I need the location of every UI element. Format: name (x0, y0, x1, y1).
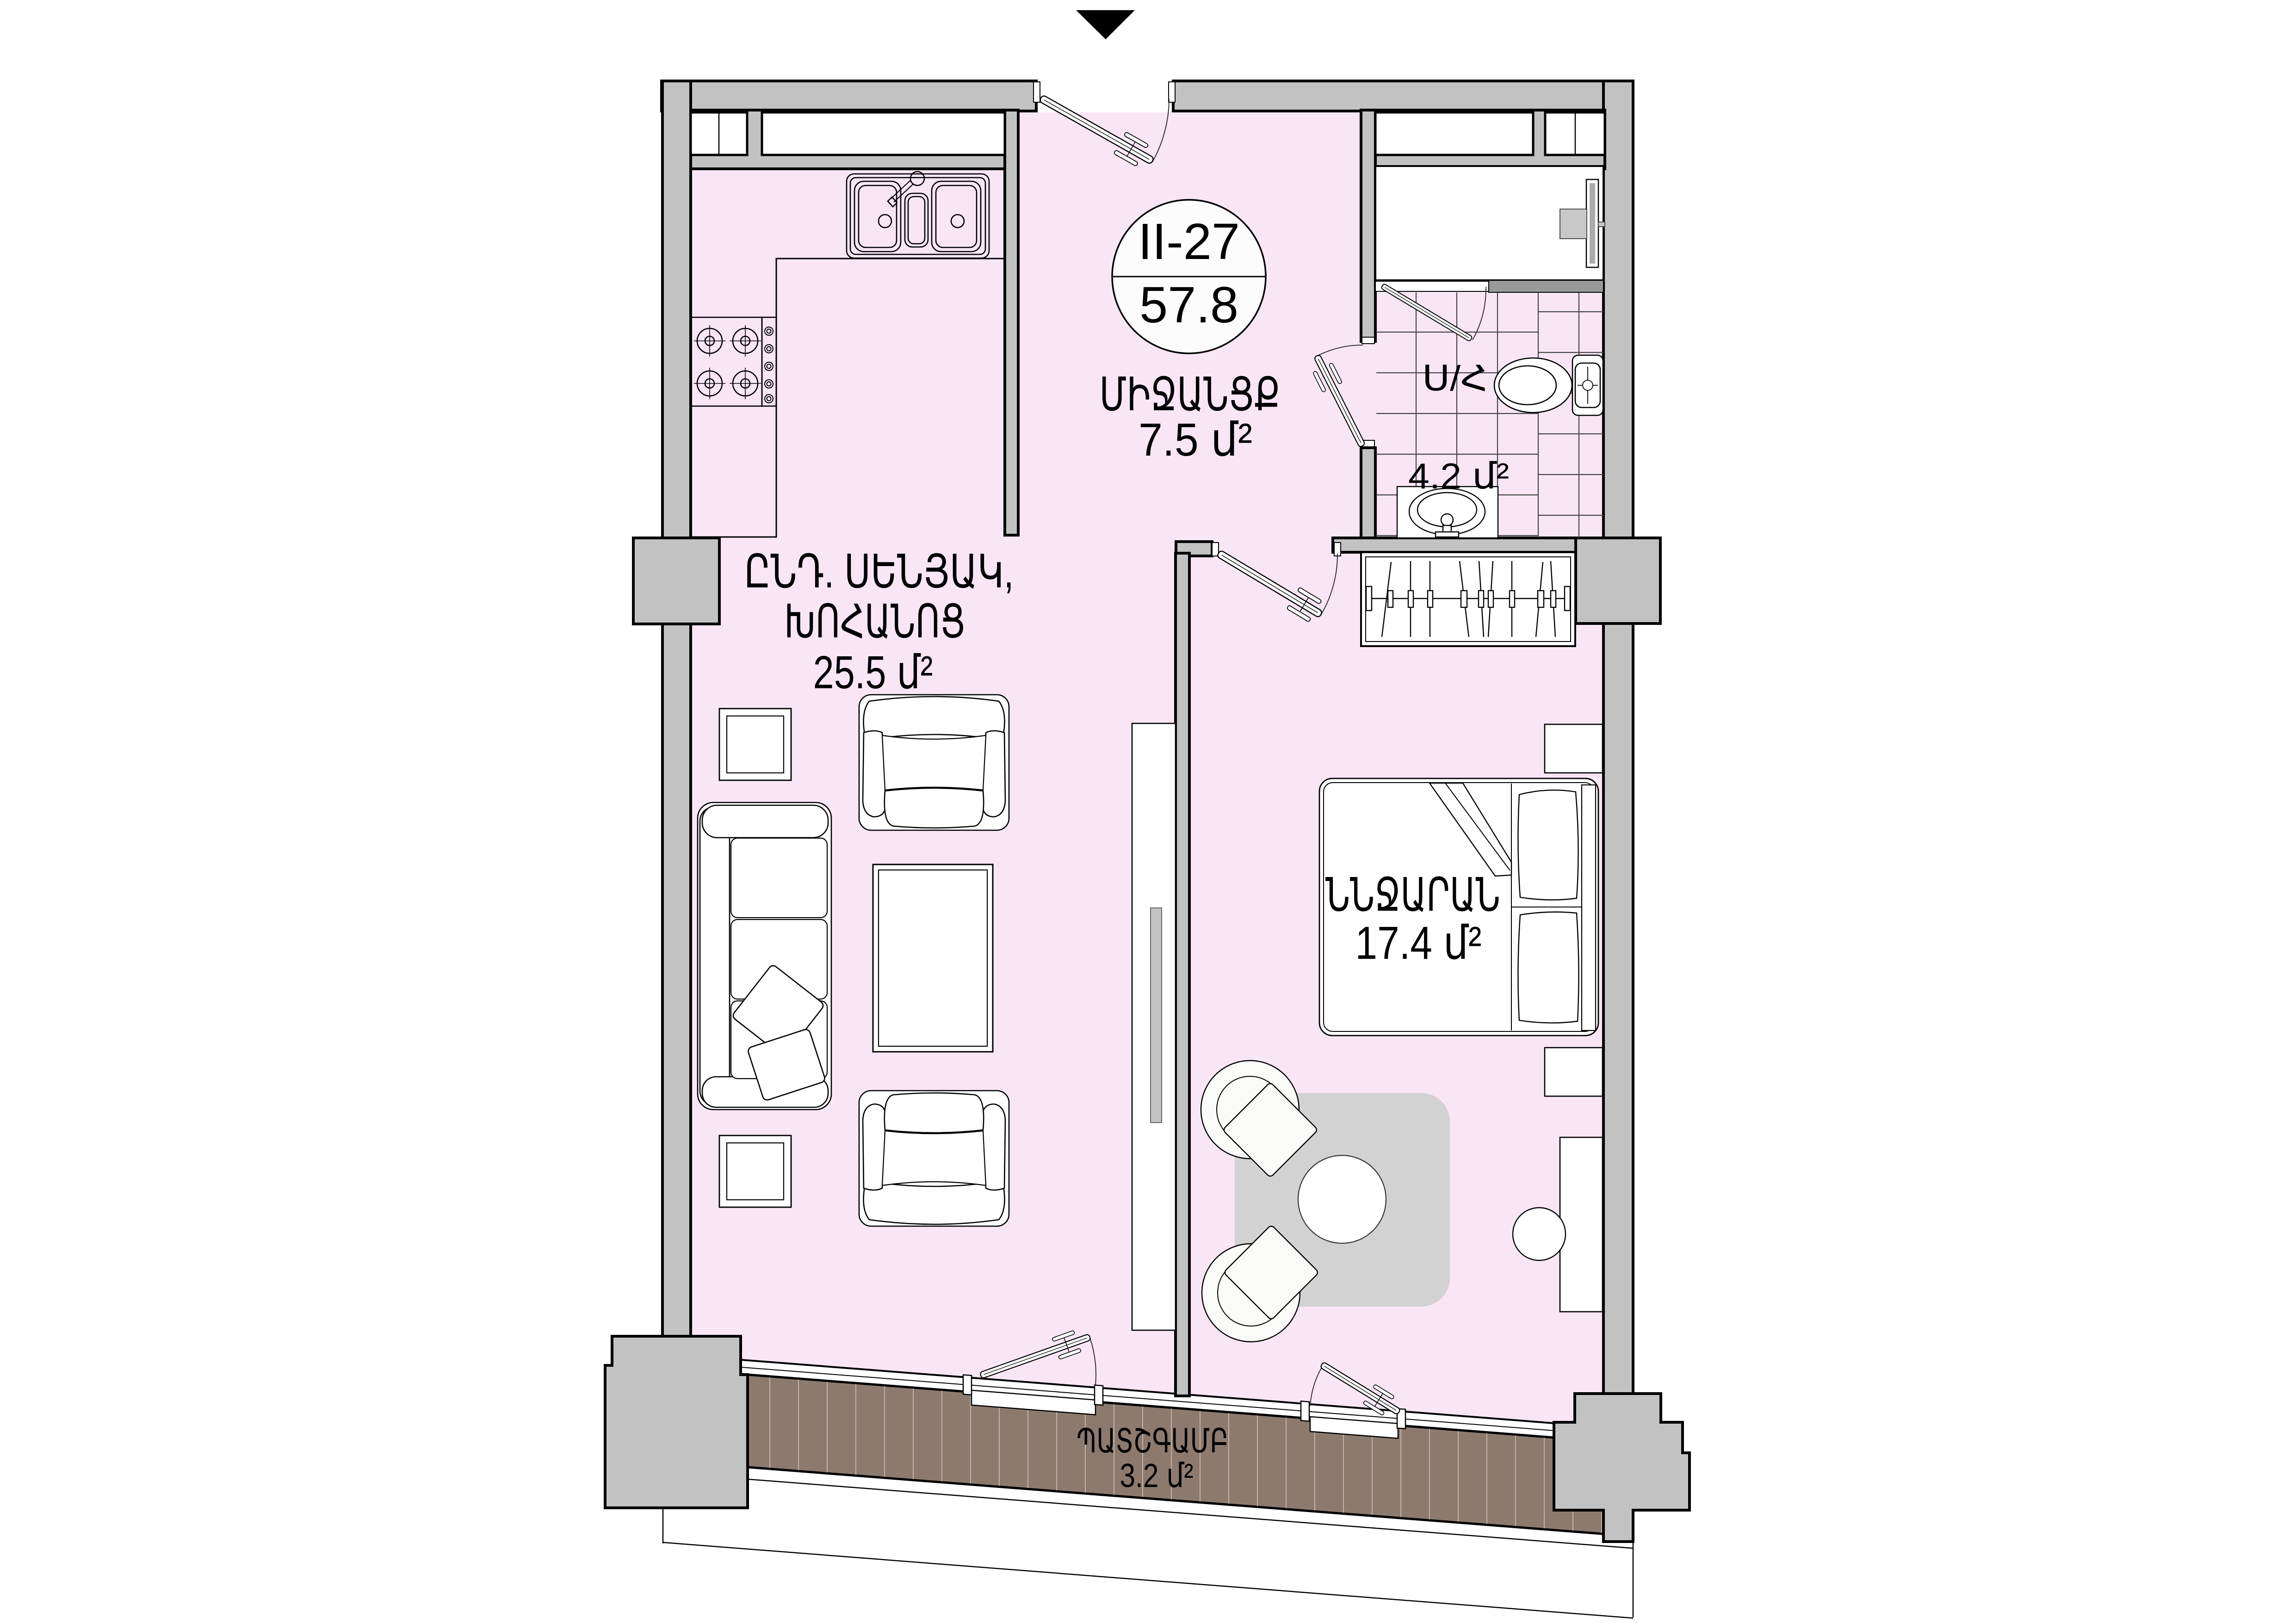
svg-text:ԸՆԴ. ՍԵՆՅԱԿ,: ԸՆԴ. ՍԵՆՅԱԿ, (744, 546, 1014, 598)
svg-text:ԽՈՀԱՆՈՑ: ԽՈՀԱՆՈՑ (784, 596, 965, 648)
svg-text:ՊԱՏՇԳԱՄԲ: ՊԱՏՇԳԱՄԲ (1077, 1423, 1228, 1460)
svg-text:17.4 մ²: 17.4 մ² (1355, 917, 1482, 969)
svg-text:II-27: II-27 (1138, 213, 1240, 270)
svg-text:4.2 մ²: 4.2 մ² (1408, 456, 1509, 496)
svg-text:57.8: 57.8 (1139, 277, 1238, 333)
svg-text:ՄԻՋԱՆՑՔ: ՄԻՋԱՆՑՔ (1100, 369, 1281, 420)
svg-text:7.5 մ²: 7.5 մ² (1139, 414, 1252, 466)
svg-text:25.5 մ²: 25.5 մ² (813, 647, 933, 698)
svg-text:3.2 մ²: 3.2 մ² (1120, 1457, 1194, 1494)
svg-text:Ս/Հ: Ս/Հ (1422, 359, 1488, 398)
svg-text:ՆՆՋԱՐԱՆ: ՆՆՋԱՐԱՆ (1325, 869, 1500, 921)
